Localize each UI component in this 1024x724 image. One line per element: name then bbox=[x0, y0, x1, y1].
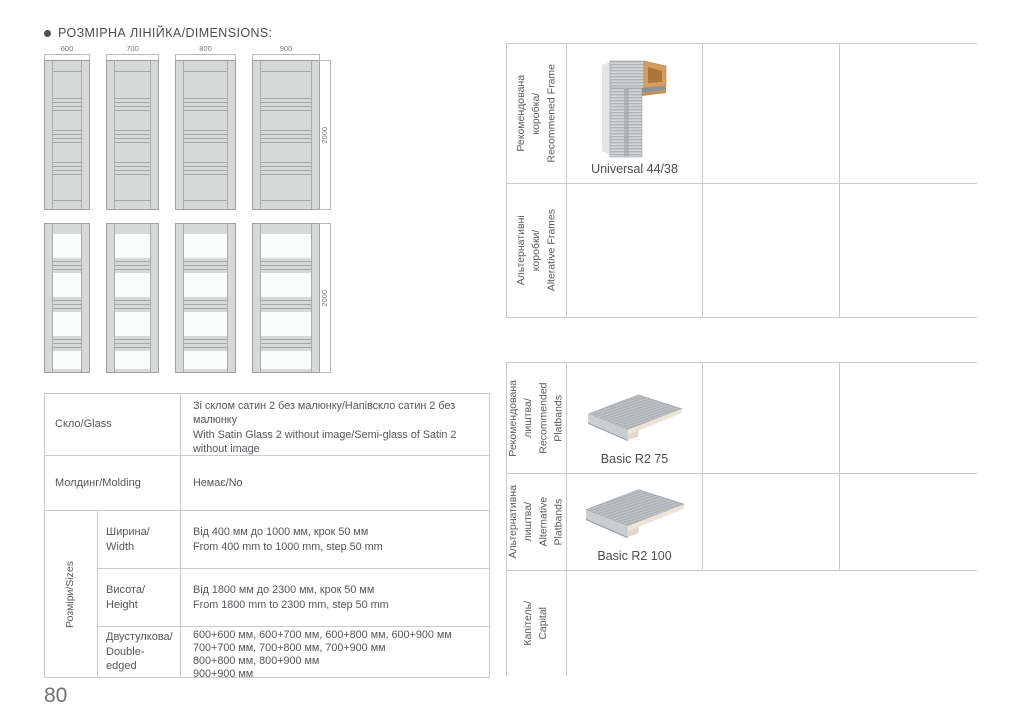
row-label-alternative-frames: Альтернативні коробки/ Alterative Frames bbox=[506, 184, 567, 317]
empty-cell bbox=[840, 363, 977, 473]
bullet-icon bbox=[44, 30, 51, 37]
sizes-group-label-cell: Розміри/Sizes bbox=[45, 511, 98, 677]
empty-cell bbox=[703, 363, 840, 473]
table-row: Капітель/ Capital bbox=[506, 571, 977, 676]
table-row: Альтернативна лиштва/ Alternative Platba… bbox=[506, 474, 977, 571]
door-panel-pattern bbox=[183, 61, 228, 209]
sizes-rows: Ширина/ Width Від 400 мм до 1000 мм, кро… bbox=[98, 511, 489, 677]
frames-table: Рекомендована коробка/ Recommened Frame bbox=[506, 43, 977, 318]
spec-label-width: Ширина/ Width bbox=[98, 511, 181, 568]
width-dimension-label: 600 bbox=[44, 44, 90, 54]
width-dimension-label: 900 bbox=[252, 44, 320, 54]
catalog-page: РОЗМІРНА ЛІНІЙКА/DIMENSIONS: 600 700 800… bbox=[0, 0, 1024, 724]
door-column-600: 600 bbox=[44, 44, 90, 210]
table-row: Ширина/ Width Від 400 мм до 1000 мм, кро… bbox=[98, 511, 489, 569]
empty-cell bbox=[567, 571, 703, 676]
spec-label-height: Висота/ Height bbox=[98, 569, 181, 626]
sizes-group-label: Розміри/Sizes bbox=[63, 561, 78, 628]
door-diagram-glass: 2000 bbox=[252, 223, 320, 373]
door-column-900: 2000 bbox=[252, 223, 320, 373]
product-cell: Universal 44/38 bbox=[567, 44, 703, 183]
table-row: Молдинг/Molding Немає/No bbox=[45, 456, 489, 511]
row-label-recommended-frame: Рекомендована коробка/ Recommened Frame bbox=[506, 44, 567, 183]
door-diagram-glass bbox=[44, 223, 90, 373]
door-glass-pattern bbox=[260, 224, 312, 372]
product-cell: Basic R2 100 bbox=[567, 474, 703, 570]
height-dimension-bracket: 2000 bbox=[319, 223, 331, 373]
empty-cell bbox=[703, 44, 840, 183]
table-row: Скло/Glass Зі склом сатин 2 без малюнку/… bbox=[45, 394, 489, 456]
door-panel-pattern bbox=[260, 61, 312, 209]
platband-image bbox=[583, 391, 687, 449]
door-column-600 bbox=[44, 223, 90, 373]
spec-label-glass: Скло/Glass bbox=[45, 394, 181, 455]
door-diagram-solid bbox=[44, 60, 90, 210]
height-dimension-bracket: 2000 bbox=[319, 60, 331, 210]
empty-cell bbox=[840, 184, 977, 317]
row-label-text: Рекомендована лиштва/ Recommended Platba… bbox=[506, 380, 567, 457]
door-column-700 bbox=[106, 223, 159, 373]
row-label-text: Альтернативна лиштва/ Alternative Platba… bbox=[506, 485, 567, 558]
table-row: Рекомендована лиштва/ Recommended Platba… bbox=[506, 363, 977, 474]
platbands-table: Рекомендована лиштва/ Recommended Platba… bbox=[506, 362, 977, 676]
sizes-group: Розміри/Sizes Ширина/ Width Від 400 мм д… bbox=[45, 511, 489, 677]
table-row: Двустулкова/ Double-edged 600+600 мм, 60… bbox=[98, 627, 489, 677]
spec-value-height: Від 1800 мм до 2300 мм, крок 50 мм From … bbox=[181, 569, 489, 626]
product-caption: Universal 44/38 bbox=[591, 162, 678, 176]
product-cell: Basic R2 75 bbox=[567, 363, 703, 473]
table-row: Рекомендована коробка/ Recommened Frame bbox=[506, 44, 977, 184]
door-diagram-glass bbox=[175, 223, 236, 373]
spec-label-double: Двустулкова/ Double-edged bbox=[98, 627, 181, 677]
width-dimension-label: 700 bbox=[106, 44, 159, 54]
door-diagram-glass bbox=[106, 223, 159, 373]
door-diagram-solid bbox=[106, 60, 159, 210]
door-column-700: 700 bbox=[106, 44, 159, 210]
doors-row-solid: 600 700 800 900 2000 bbox=[44, 44, 320, 210]
empty-cell bbox=[567, 184, 703, 317]
empty-cell bbox=[840, 571, 977, 676]
door-glass-pattern bbox=[183, 224, 228, 372]
table-row: Висота/ Height Від 1800 мм до 2300 мм, к… bbox=[98, 569, 489, 627]
row-label-capital: Капітель/ Capital bbox=[506, 571, 567, 676]
page-title-text: РОЗМІРНА ЛІНІЙКА/DIMENSIONS: bbox=[58, 26, 273, 40]
product-caption: Basic R2 75 bbox=[601, 452, 668, 466]
frame-profile-image bbox=[596, 55, 674, 159]
platband-image bbox=[576, 486, 694, 546]
doors-row-glass: 2000 bbox=[44, 223, 320, 373]
product-caption: Basic R2 100 bbox=[597, 549, 671, 563]
spec-value-glass: Зі склом сатин 2 без малюнку/Напівскло с… bbox=[181, 394, 489, 455]
specifications-table: Скло/Glass Зі склом сатин 2 без малюнку/… bbox=[44, 393, 490, 678]
empty-cell bbox=[840, 44, 977, 183]
empty-cell bbox=[703, 571, 840, 676]
empty-cell bbox=[703, 474, 840, 570]
height-dimension-label: 2000 bbox=[320, 290, 329, 307]
row-label-text: Рекомендована коробка/ Recommened Frame bbox=[514, 64, 560, 163]
row-label-recommended-platbands: Рекомендована лиштва/ Recommended Platba… bbox=[506, 363, 567, 473]
door-glass-pattern bbox=[52, 224, 82, 372]
door-panel-pattern bbox=[52, 61, 82, 209]
table-row: Альтернативні коробки/ Alterative Frames bbox=[506, 184, 977, 318]
empty-cell bbox=[840, 474, 977, 570]
row-label-text: Капітель/ Capital bbox=[521, 601, 551, 646]
row-label-alternative-platbands: Альтернативна лиштва/ Alternative Platba… bbox=[506, 474, 567, 570]
width-dimension-label: 800 bbox=[175, 44, 236, 54]
door-column-800: 800 bbox=[175, 44, 236, 210]
door-column-900: 900 2000 bbox=[252, 44, 320, 210]
height-dimension-label: 2000 bbox=[320, 127, 329, 144]
spec-value-molding: Немає/No bbox=[181, 456, 489, 510]
door-panel-pattern bbox=[114, 61, 151, 209]
empty-cell bbox=[703, 184, 840, 317]
spec-label-molding: Молдинг/Molding bbox=[45, 456, 181, 510]
row-label-text: Альтернативні коробки/ Alterative Frames bbox=[514, 209, 560, 291]
door-diagram-solid bbox=[175, 60, 236, 210]
page-number: 80 bbox=[44, 684, 67, 708]
spec-value-width: Від 400 мм до 1000 мм, крок 50 мм From 4… bbox=[181, 511, 489, 568]
page-title: РОЗМІРНА ЛІНІЙКА/DIMENSIONS: bbox=[44, 26, 273, 40]
door-diagram-solid: 2000 bbox=[252, 60, 320, 210]
door-glass-pattern bbox=[114, 224, 151, 372]
spec-value-double: 600+600 мм, 600+700 мм, 600+800 мм, 600+… bbox=[181, 627, 489, 677]
door-column-800 bbox=[175, 223, 236, 373]
